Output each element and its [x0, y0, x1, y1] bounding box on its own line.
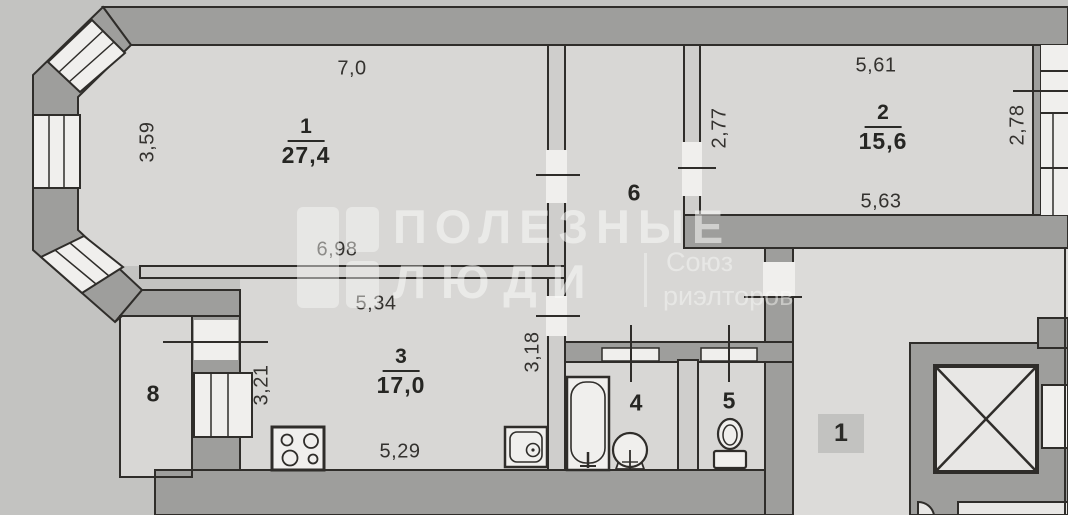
dim-room3-top: 5,34: [356, 293, 397, 316]
door-opening: [194, 320, 238, 360]
stove-icon: [272, 427, 324, 470]
wall-rooms-hall: [548, 45, 565, 470]
top-exterior-wall: [103, 7, 1068, 45]
window: [33, 115, 80, 188]
room-5-label: 5: [723, 388, 736, 415]
dim-room3-bottom: 5,29: [380, 441, 421, 464]
window: [1041, 45, 1068, 215]
dim-room1-left: 3,59: [137, 122, 160, 163]
window: [194, 373, 252, 437]
wall-room4-room5: [678, 360, 698, 470]
room-2-number: 2: [864, 101, 902, 128]
room-2-area: 15,6: [859, 128, 908, 154]
dim-room3-left: 3,21: [251, 365, 274, 406]
floor-plan-drawing: [0, 0, 1068, 515]
elevator-shaft-icon: [935, 366, 1037, 472]
wall-room1-room3: [140, 266, 565, 278]
room-4-label: 4: [630, 390, 643, 417]
room2-bottom-wall: [684, 215, 1068, 248]
stairs-block: [958, 502, 1068, 515]
dim-room2-bottom: 5,63: [861, 191, 902, 214]
floor-plan: 1 27,4 2 15,6 3 17,0 4 5 6 8 1 7,0 3,59 …: [0, 0, 1068, 515]
room-3-label: 3 17,0: [377, 345, 426, 399]
elevator-block-tab: [1038, 318, 1068, 348]
landing-number: 1: [834, 419, 848, 448]
dim-room2-right: 2,78: [1007, 105, 1030, 146]
room-1-area: 27,4: [282, 142, 331, 168]
dim-room2-top: 5,61: [856, 55, 897, 78]
room2-right-wall: [1033, 45, 1041, 215]
dim-room1-top: 7,0: [337, 58, 366, 81]
room-1-number: 1: [287, 115, 325, 142]
dim-room1-bottom: 6,98: [317, 239, 358, 262]
room-3-number: 3: [382, 345, 420, 372]
bottom-exterior-wall: [155, 470, 793, 515]
room-2-label: 2 15,6: [859, 101, 908, 155]
round-sink-icon: [613, 433, 647, 469]
room-1-label: 1 27,4: [282, 115, 331, 169]
room-8-label: 8: [147, 381, 160, 408]
dim-room3-right: 3,18: [522, 332, 545, 373]
landing-label: 1: [818, 414, 864, 453]
door-opening: [763, 262, 795, 297]
door-opening: [546, 150, 567, 203]
bathtub-icon: [567, 377, 609, 470]
room-3-area: 17,0: [377, 372, 426, 398]
room-6-label: 6: [628, 180, 641, 207]
kitchen-sink-icon: [505, 427, 547, 467]
dim-room2-left: 2,77: [709, 108, 732, 149]
